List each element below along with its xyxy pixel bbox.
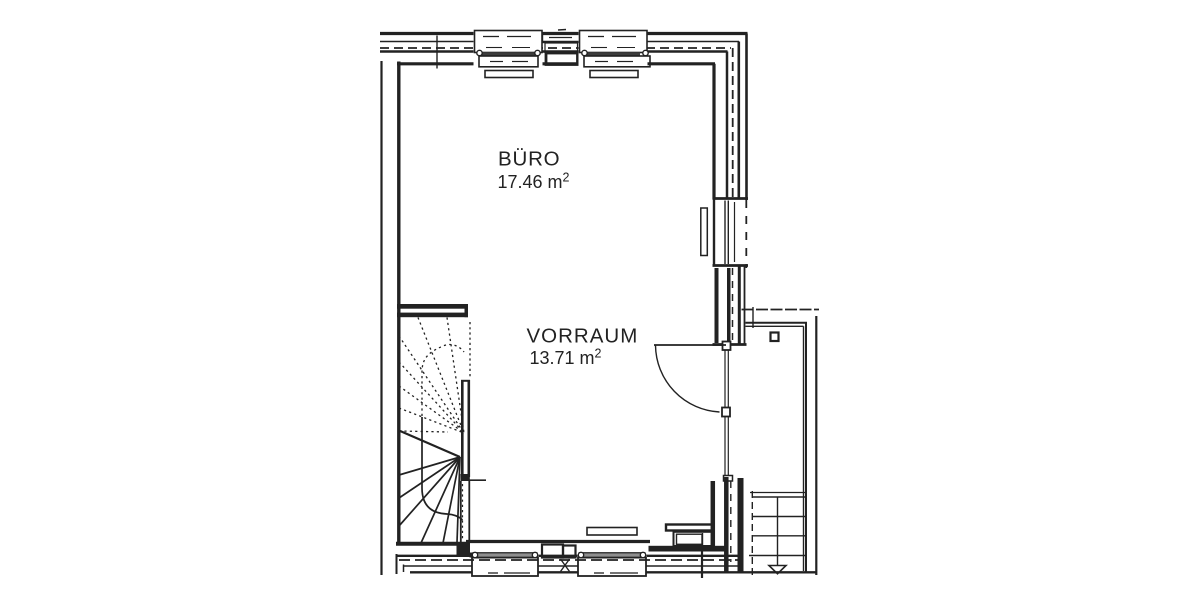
svg-text:13.71 m2: 13.71 m2 — [530, 347, 602, 369]
svg-text:VORRAUM: VORRAUM — [527, 325, 639, 348]
svg-text:17.46 m2: 17.46 m2 — [498, 171, 570, 193]
svg-text:BÜRO: BÜRO — [498, 148, 560, 171]
